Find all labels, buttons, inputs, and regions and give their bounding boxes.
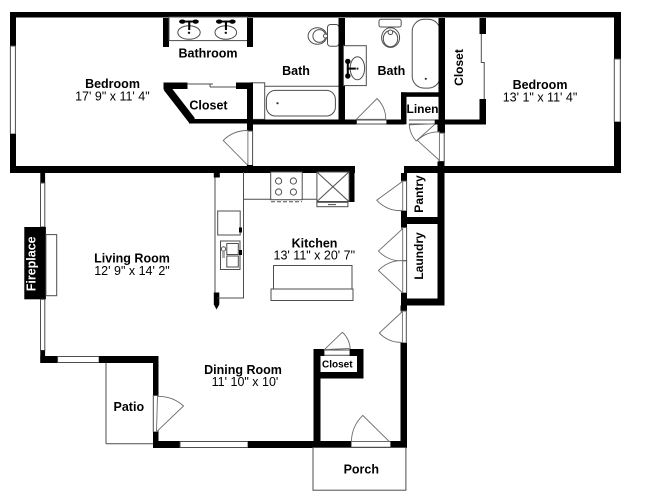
svg-text:11' 10" x 10': 11' 10" x 10' — [212, 375, 279, 389]
svg-text:Closet: Closet — [322, 360, 353, 371]
svg-text:Bath: Bath — [378, 64, 406, 78]
svg-text:Pantry: Pantry — [412, 175, 426, 213]
svg-text:13' 11" x 20' 7": 13' 11" x 20' 7" — [274, 249, 356, 263]
svg-text:Closet: Closet — [452, 49, 466, 86]
svg-text:Porch: Porch — [344, 463, 379, 477]
svg-text:17' 9" x 11' 4": 17' 9" x 11' 4" — [75, 89, 150, 103]
svg-text:12' 9" x 14' 2": 12' 9" x 14' 2" — [94, 264, 170, 278]
svg-text:Bathroom: Bathroom — [178, 47, 237, 61]
svg-text:Patio: Patio — [114, 400, 145, 414]
svg-text:Fireplace: Fireplace — [24, 236, 38, 291]
svg-text:Laundry: Laundry — [412, 232, 426, 280]
svg-text:Linen: Linen — [407, 102, 439, 116]
svg-text:Closet: Closet — [189, 99, 228, 113]
svg-text:13' 1" x 11' 4": 13' 1" x 11' 4" — [503, 91, 578, 105]
svg-text:Bath: Bath — [282, 64, 310, 78]
